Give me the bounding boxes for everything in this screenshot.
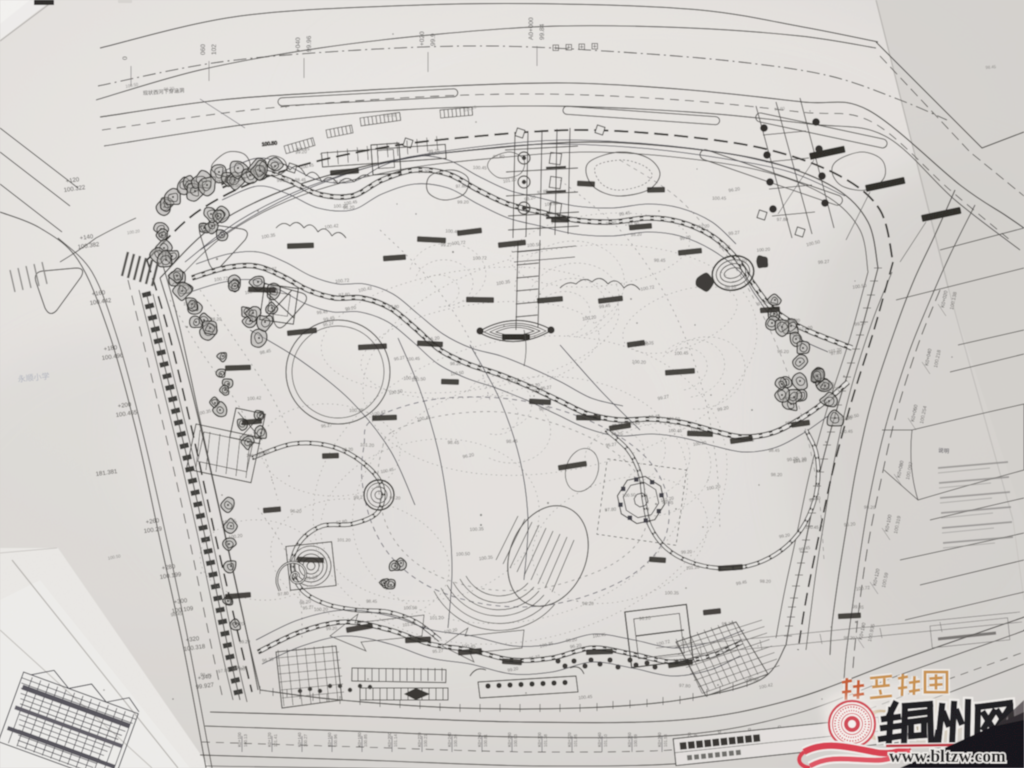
- svg-text:www.bltzw.com: www.bltzw.com: [889, 746, 1006, 766]
